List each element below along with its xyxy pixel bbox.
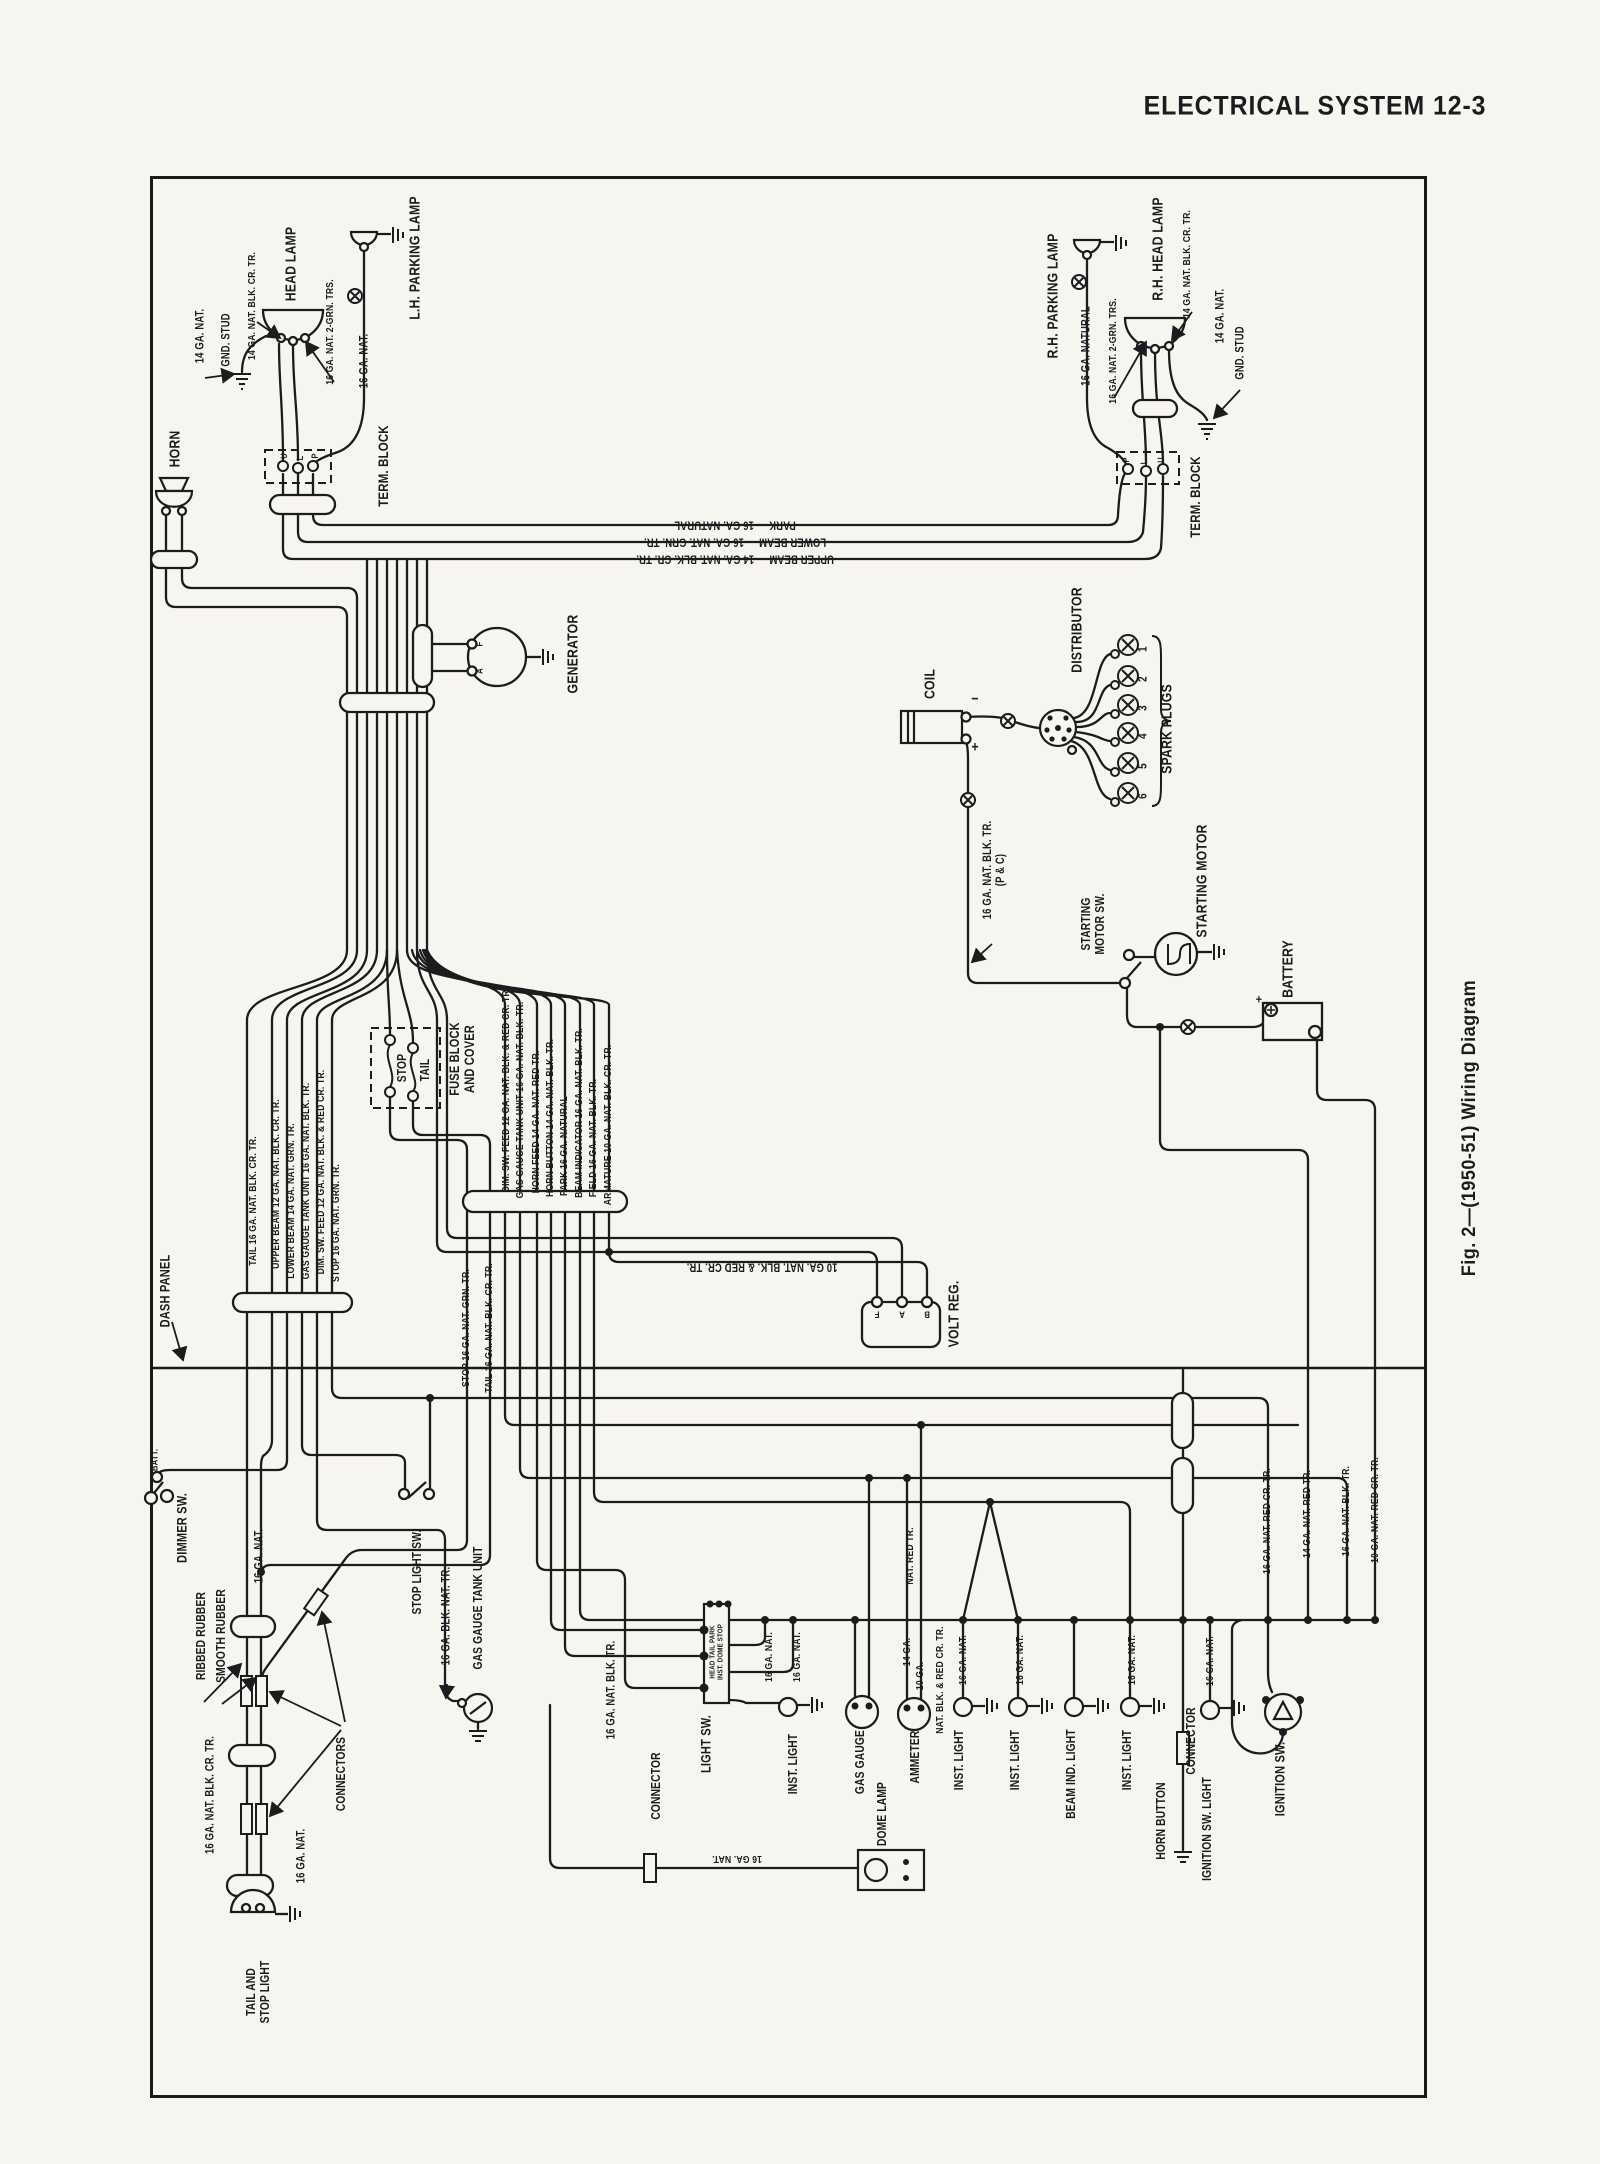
wire-label: 3: [1136, 705, 1149, 711]
wire-label: P: [1121, 457, 1131, 462]
manual-page: ELECTRICAL SYSTEM 12-3 Fig. 2—(1950-51) …: [0, 0, 1600, 2164]
wire-label: 16 GA. NAT. BLK. TR. (P & C): [982, 821, 1008, 919]
rh-term-block-label: TERM. BLOCK: [1188, 456, 1204, 538]
labels-layer: HEAD LAMPL.H. PARKING LAMP14 GA. NAT.GND…: [0, 0, 1600, 2164]
wire-label: 14 GA. NAT. BLK. CR. TR.: [1182, 210, 1194, 318]
wire-label: 10 GA. NAT. BLK. & RED CR. TR.: [687, 1260, 838, 1273]
wire-label: 14 GA.: [902, 1638, 914, 1666]
wire-label: STOP: [395, 1054, 409, 1082]
dome-connector-label: CONNECTOR: [649, 1752, 663, 1819]
stop-light-switch-label: STOP LIGHT SW.: [410, 1529, 424, 1614]
wire-label: 5: [1136, 763, 1149, 769]
wire-label: TAIL 16 GA. NAT. BLK. CR. TR.: [484, 1263, 496, 1393]
wire-label: UPPER BEAM — 14 GA. NAT. BLK. CR. TR.: [636, 552, 834, 565]
rh-ground-stud-label: GND. STUD: [1235, 326, 1248, 379]
wire-label: 16 GA. NAT.: [958, 1635, 970, 1685]
gas-gauge-label: GAS GAUGE: [853, 1730, 867, 1794]
coil-label: COIL: [923, 669, 940, 699]
wire-label: 14 GA. NAT.: [195, 309, 208, 364]
dome-lamp-label: DOME LAMP: [875, 1782, 889, 1846]
wire-label: F: [476, 642, 487, 647]
wire-label: TAIL 16 GA. NAT. BLK. CR. TR.: [248, 1136, 260, 1266]
wire-label: GAS GAUGE TANK UNIT 16 GA. NAT. BLK. TR.: [301, 1083, 313, 1280]
wire-label: 16 GA. NATURAL: [1081, 306, 1094, 386]
ammeter-label: AMMETER: [908, 1731, 922, 1784]
ignition-switch-label: IGNITION SW.: [1272, 1742, 1287, 1817]
wire-label: A: [476, 668, 487, 674]
wire-label: L: [295, 456, 305, 461]
wire-label: LOWER BEAM — 16 GA. NAT. GRN. TR.: [644, 535, 826, 548]
voltage-regulator-label: VOLT REG.: [947, 1281, 964, 1348]
wire-label: 16 GA. NAT. BLK. CR. TR.: [205, 1736, 218, 1854]
wire-label: ARMATURE 10 GA. NAT. BLK. CR. TR.: [603, 1045, 615, 1206]
wire-label: 4: [1136, 733, 1149, 739]
wire-label: 14 GA. NAT.: [1215, 289, 1228, 344]
wire-label: HORN BUTTON 14 GA. NAT. BLK. TR.: [545, 1039, 557, 1197]
dash-panel-label: DASH PANEL: [157, 1255, 172, 1328]
wire-label: UPPER BEAM 12 GA. NAT. BLK. CR. TR.: [271, 1099, 283, 1269]
wire-label: 16 GA. NAT. 2-GRN. TRS.: [1108, 298, 1120, 404]
wire-label: HORN FEED 14 GA. NAT. RED TR.: [531, 1051, 543, 1194]
inst-light-label: INST. LIGHT: [1008, 1730, 1022, 1790]
starting-motor-label: STARTING MOTOR: [1195, 824, 1212, 937]
wire-label: BATT.: [151, 1449, 162, 1471]
wire-label: 16 GA. NAT. BLK. TR.: [606, 1641, 619, 1739]
wire-label: 16 GA. NAT.: [296, 1829, 309, 1884]
wire-label: +: [971, 740, 978, 757]
wire-label: 16 GA. NAT. 2-GRN. TRS.: [325, 279, 337, 385]
rh-head-lamp-label: R.H. HEAD LAMP: [1151, 197, 1168, 300]
wire-label: 16 GA. NAT.: [792, 1632, 804, 1682]
wire-label: 16 GA. NAT. RED CR. TR.: [1262, 1468, 1274, 1574]
wire-label: 10 GA.: [915, 1662, 927, 1690]
wire-label: 16 GA. NAT. BLK. TR.: [1341, 1466, 1353, 1556]
wire-label: TAIL: [418, 1059, 432, 1082]
dimmer-switch-label: DIMMER SW.: [174, 1493, 189, 1563]
wire-label: 16 GA. NAT.: [254, 1529, 267, 1584]
lh-ground-stud-label: GND. STUD: [221, 313, 234, 366]
beam-indicator-light-label: BEAM IND. LIGHT: [1064, 1729, 1078, 1819]
wire-label: STOP 16 GA. NAT. GRN. TR.: [461, 1269, 473, 1387]
inst-light-label: INST. LIGHT: [786, 1734, 800, 1794]
wire-label: 16 GA. NAT.: [359, 334, 372, 389]
lh-term-block-label: TERM. BLOCK: [376, 425, 392, 507]
wire-label: 14 GA. NAT. BLK. CR. TR.: [247, 252, 259, 360]
inst-light-label: INST. LIGHT: [1120, 1730, 1134, 1790]
connectors-label: CONNECTORS: [334, 1737, 348, 1811]
wire-label: U: [1156, 457, 1166, 462]
battery-label: BATTERY: [1281, 940, 1298, 998]
generator-label: GENERATOR: [566, 615, 583, 694]
horn-connector-label: CONNECTOR: [1184, 1707, 1198, 1774]
lh-parking-lamp-label: L.H. PARKING LAMP: [408, 196, 425, 320]
wire-label: A: [899, 1308, 905, 1319]
wire-label: PARK 16 GA. NATURAL: [559, 1096, 571, 1196]
distributor-label: DISTRIBUTOR: [1070, 587, 1087, 673]
fuse-block-label: FUSE BLOCK AND COVER: [447, 1022, 477, 1096]
wire-label: −: [971, 692, 978, 709]
wire-label: PARK — 16 GA. NATURAL: [674, 518, 796, 531]
rh-parking-lamp-label: R.H. PARKING LAMP: [1046, 234, 1063, 359]
horn-label: HORN: [168, 431, 185, 468]
wire-label: DIM. SW. FEED 12 GA. NAT. BLK. & RED CR.…: [501, 988, 513, 1193]
wire-label: LOWER BEAM 14 GA. NAT. GRN. TR.: [286, 1123, 298, 1279]
wire-label: STOP 16 GA. NAT. GRN. TR.: [331, 1164, 343, 1282]
wire-label: DIM. SW. FEED 12 GA. NAT. BLK. & RED CR.…: [316, 1070, 328, 1275]
wire-label: 10 GA. NAT. RED CR. TR.: [1370, 1457, 1382, 1563]
wire-label: +: [1256, 993, 1262, 1008]
wire-label: NAT. RED TR.: [905, 1527, 917, 1584]
wire-label: 16 GA. BLK. NAT. TR.: [441, 1567, 454, 1665]
wire-label: SMOOTH RUBBER: [214, 1589, 228, 1683]
wire-label: 1: [1136, 646, 1149, 652]
wire-label: 16 GA. NAT.: [712, 1852, 762, 1864]
wire-label: BEAM INDICATOR 16 GA. NAT. BLK. TR.: [574, 1028, 586, 1198]
wire-label: L: [1139, 460, 1149, 465]
gas-gauge-tank-unit-label: GAS GAUGE TANK UNIT: [471, 1546, 485, 1669]
wire-label: 2: [1136, 676, 1149, 682]
ignition-switch-light-label: IGNITION SW. LIGHT: [1200, 1777, 1214, 1881]
wire-label: 16 GA. NAT.: [764, 1632, 776, 1682]
light-switch-positions-label: HEAD TAIL PARK INST. DOME STOP: [709, 1624, 726, 1680]
spark-plugs-label: SPARK PLUGS: [1160, 684, 1177, 774]
starting-motor-switch-label: STARTING MOTOR SW.: [1079, 893, 1107, 954]
tail-stop-light-label: TAIL AND STOP LIGHT: [244, 1961, 272, 2024]
wire-label: 16 GA. NAT.: [1015, 1635, 1027, 1685]
wire-label: 16 GA. NAT.: [1127, 1635, 1139, 1685]
wire-label: P: [310, 453, 320, 458]
wire-label: GAS GAUGE TANK UNIT 16 GA. NAT. BLK. TR.: [515, 1002, 527, 1199]
light-switch-label: LIGHT SW.: [698, 1715, 713, 1773]
wire-label: F: [875, 1308, 880, 1319]
wire-label: 16 GA. NAT.: [1205, 1636, 1217, 1686]
inst-light-label: INST. LIGHT: [952, 1730, 966, 1790]
horn-button-label: HORN BUTTON: [1154, 1782, 1168, 1859]
wire-label: NAT. BLK. & RED CR. TR.: [935, 1626, 947, 1733]
wire-label: 6: [1136, 793, 1149, 799]
wire-label: U: [279, 453, 289, 458]
lh-head-lamp-label: HEAD LAMP: [284, 227, 301, 302]
wire-label: B: [924, 1308, 930, 1319]
wire-label: 14 GA. NAT. RED TR.: [1302, 1470, 1314, 1558]
wire-label: RIBBED RUBBER: [194, 1592, 208, 1680]
wire-label: FIELD 16 GA. NAT. BLK. TR.: [588, 1079, 600, 1197]
